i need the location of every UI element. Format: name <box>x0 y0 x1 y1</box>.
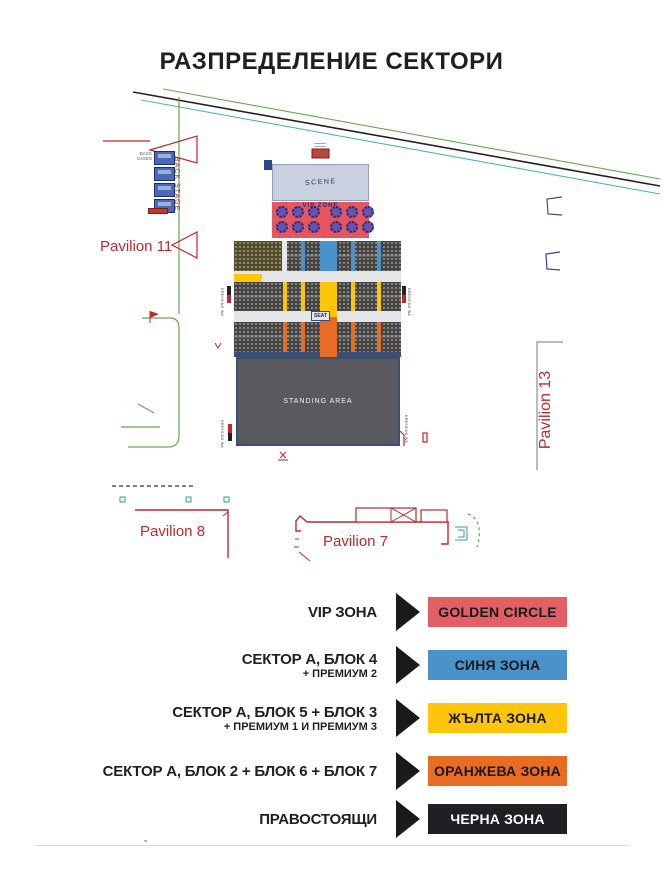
boundary-line-black <box>133 92 660 186</box>
pavilion8-pillars <box>120 497 229 502</box>
aisle-stripe-yellow <box>351 282 355 311</box>
vip-table-icon <box>308 206 320 218</box>
flag-icon <box>150 311 159 318</box>
road-markers <box>150 311 221 348</box>
dressing-label: DRESSING WA <box>407 288 411 316</box>
arrow-right-icon <box>396 646 420 684</box>
aisle-stripe-blue <box>301 241 305 271</box>
standing-area-label: STANDING AREA <box>283 398 352 405</box>
dressing-label: DRESSING WA <box>220 420 224 448</box>
yellow-aisle-band <box>234 274 262 282</box>
zone-badge-text: ЖЪЛТА ЗОНА <box>448 710 547 726</box>
boundary-line-green <box>163 89 660 179</box>
pavilion7-corner-bracket <box>455 527 467 540</box>
legend-label: СЕКТОР А, БЛОК 4 + ПРЕМИУМ 2 <box>0 646 377 684</box>
row-walkway <box>234 335 401 338</box>
legend-row: ПРАВОСТОЯЩИ ЧЕРНА ЗОНА <box>0 800 663 838</box>
structure-bracket <box>546 252 560 270</box>
vip-table-icon <box>276 221 288 233</box>
pavilion8-tick <box>223 512 228 516</box>
aisle-stripe-yellow <box>377 282 381 311</box>
aisle-stripe-yellow <box>283 282 287 311</box>
pavilion-8-label: Pavilion 8 <box>140 523 205 540</box>
dressing-label: DRESSING WA <box>404 415 408 443</box>
vip-table-icon <box>362 221 374 233</box>
foh-caption-line <box>314 143 326 144</box>
vip-table-icon <box>292 206 304 218</box>
arrow-right-icon <box>396 593 420 631</box>
aisle-stripe-orange <box>377 322 381 352</box>
legend-label-text: VIP ЗОНА <box>308 604 377 621</box>
legend-label: ПРАВОСТОЯЩИ <box>0 800 377 838</box>
zone-badge-text: ЧЕРНА ЗОНА <box>450 811 544 827</box>
standing-area: STANDING AREA <box>236 357 400 446</box>
stage-left-box <box>264 160 272 170</box>
vip-table-icon <box>330 221 342 233</box>
speck <box>144 840 147 842</box>
zone-badge: СИНЯ ЗОНА <box>428 650 567 680</box>
vip-table-icon <box>346 221 358 233</box>
arrow-right-icon <box>396 752 420 790</box>
legend-label-text: ПРАВОСТОЯЩИ <box>259 811 377 828</box>
legend-sublabel-text: + ПРЕМИУМ 2 <box>303 668 377 680</box>
zone-badge-text: СИНЯ ЗОНА <box>455 657 541 673</box>
bottom-divider <box>35 845 630 846</box>
aisle-stripe-orange <box>301 322 305 352</box>
vip-table-icon <box>308 221 320 233</box>
zone-badge: ЧЕРНА ЗОНА <box>428 804 567 834</box>
zone-badge: ОРАНЖЕВА ЗОНА <box>428 756 567 786</box>
backstage-container-icon <box>154 167 175 181</box>
seating-row-blue <box>234 241 401 271</box>
aisle-stripe-blue <box>351 241 355 271</box>
legend-sublabel-text: + ПРЕМИУМ 1 И ПРЕМИУМ 3 <box>224 721 377 733</box>
aisle-stripe <box>282 241 287 271</box>
aisle-stripe-blue <box>377 241 381 271</box>
legend-row: СЕКТОР А, БЛОК 5 + БЛОК 3 + ПРЕМИУМ 1 И … <box>0 699 663 737</box>
legend-row: СЕКТОР А, БЛОК 4 + ПРЕМИУМ 2 СИНЯ ЗОНА <box>0 646 663 684</box>
stage: SCENE <box>272 164 369 201</box>
center-aisle-blue <box>320 241 337 271</box>
legend-label-text: СЕКТОР А, БЛОК 5 + БЛОК 3 <box>172 704 377 721</box>
zone-badge: ЖЪЛТА ЗОНА <box>428 703 567 733</box>
aisle-stripe-orange <box>283 322 287 352</box>
backstage-label: BACK STAGE <box>173 157 180 241</box>
aisle-stripe-yellow <box>301 282 305 311</box>
seating-block-olive <box>234 241 282 271</box>
vip-table-icon <box>362 206 374 218</box>
legend-label-text: СЕКТОР А, БЛОК 4 <box>242 651 377 668</box>
row-walkway <box>234 295 401 298</box>
aisle-stripe-orange <box>351 322 355 352</box>
vip-table-icon <box>346 206 358 218</box>
zone-badge-text: ОРАНЖЕВА ЗОНА <box>434 763 561 779</box>
vip-table-icon <box>330 206 342 218</box>
foh-caption-line <box>314 146 326 147</box>
seating-row-yellow <box>234 282 401 311</box>
legend-label: СЕКТОР А, БЛОК 2 + БЛОК 6 + БЛОК 7 <box>0 752 377 790</box>
seating-row-orange <box>234 322 401 352</box>
seat-marker: SEAT <box>311 311 330 321</box>
pavilion-7-label: Pavilion 7 <box>323 533 388 550</box>
legend-label: VIP ЗОНА <box>0 593 377 631</box>
arrow-right-icon <box>396 699 420 737</box>
legend-label: СЕКТОР А, БЛОК 5 + БЛОК 3 + ПРЕМИУМ 1 И … <box>0 699 377 737</box>
vip-table-icon <box>276 206 288 218</box>
arrow-right-icon <box>396 800 420 838</box>
legend-row: VIP ЗОНА GOLDEN CIRCLE <box>0 593 663 631</box>
back-cases-label: BACK CASES <box>131 151 152 161</box>
pavilion7-green-dashes <box>468 514 479 547</box>
backstage-container-icon <box>154 151 175 165</box>
backstage-ramp <box>148 208 168 214</box>
dressing-label: DRESSING WA <box>220 288 224 316</box>
legend-row: СЕКТОР А, БЛОК 2 + БЛОК 6 + БЛОК 7 ОРАНЖ… <box>0 752 663 790</box>
backstage-container-icon <box>154 183 175 197</box>
seat-marker-label: SEAT <box>314 313 327 319</box>
center-aisle-orange <box>320 317 337 357</box>
boundary-line-teal <box>141 100 660 194</box>
sector-map-page: РАЗПРЕДЕЛЕНИЕ СЕКТОРИ <box>0 0 663 883</box>
zone-badge-text: GOLDEN CIRCLE <box>438 604 557 620</box>
pavilion-11-label: Pavilion 11 <box>100 238 172 255</box>
stage-label: SCENE <box>305 178 337 187</box>
pavilion-13-label: Pavilion 13 <box>537 350 557 470</box>
structure-bracket <box>547 197 562 215</box>
vip-table-icon <box>292 221 304 233</box>
legend-label-text: СЕКТОР А, БЛОК 2 + БЛОК 6 + БЛОК 7 <box>103 763 377 780</box>
zone-badge: GOLDEN CIRCLE <box>428 597 567 627</box>
foh-marker <box>312 149 329 158</box>
